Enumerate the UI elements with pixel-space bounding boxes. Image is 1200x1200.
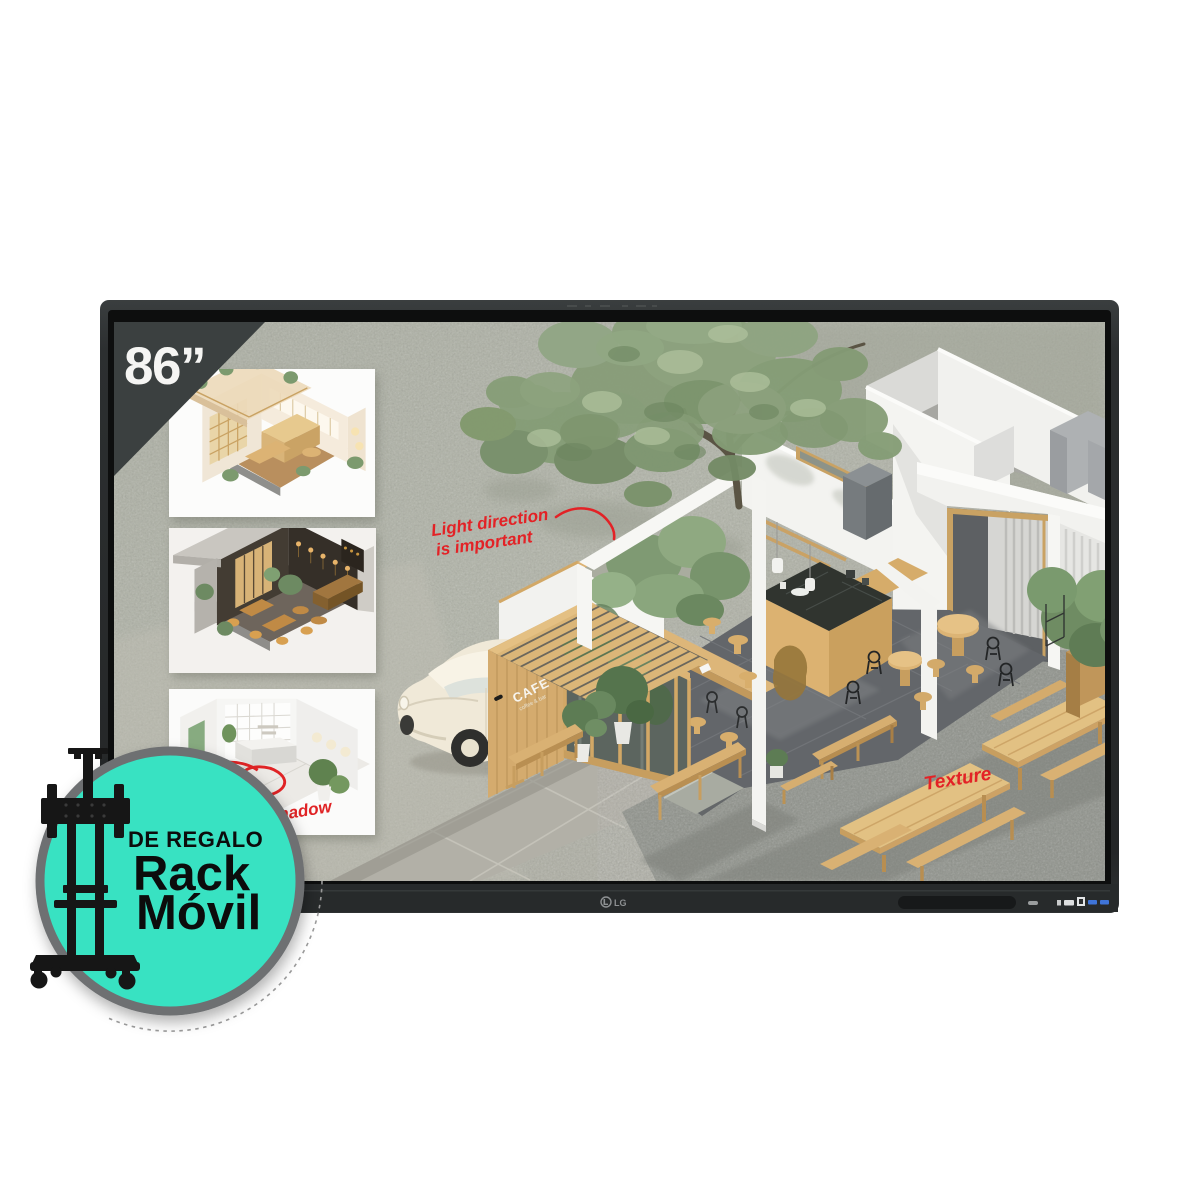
svg-text:86”: 86” — [124, 337, 205, 396]
svg-text:LG: LG — [614, 898, 627, 908]
svg-text:Móvil: Móvil — [136, 886, 261, 940]
